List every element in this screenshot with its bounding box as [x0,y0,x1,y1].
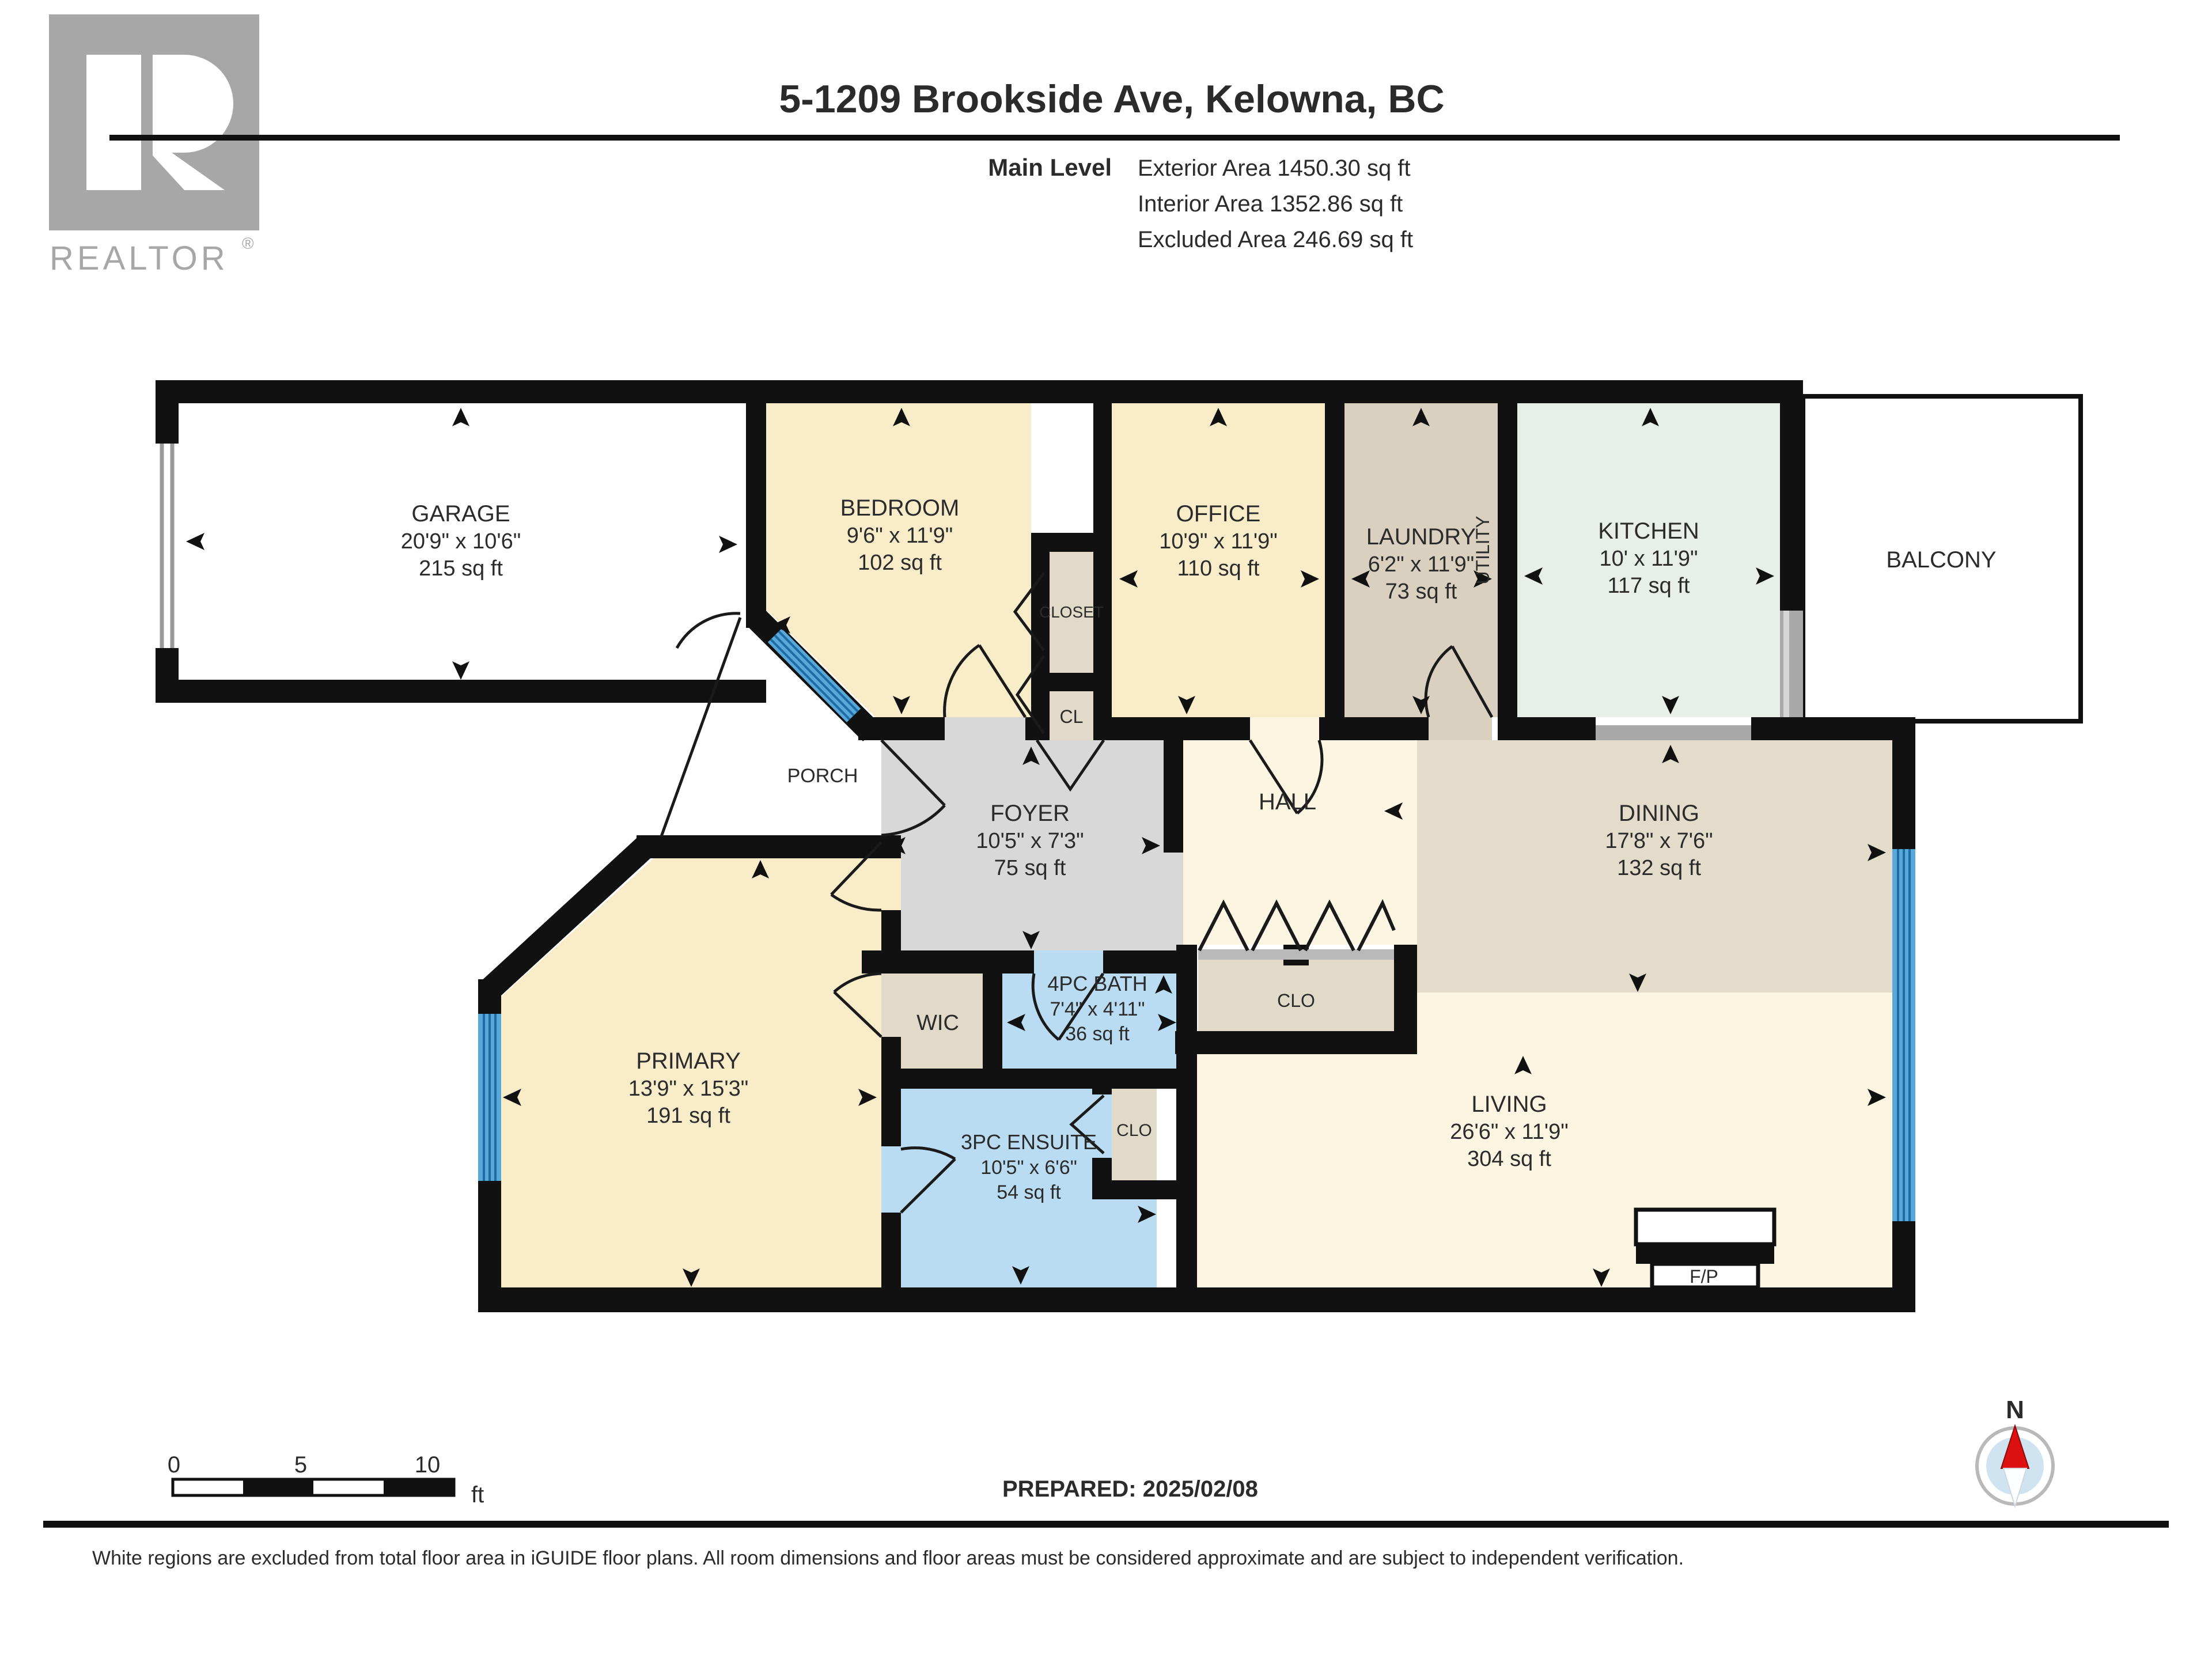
ensuite-dims: 10'5" x 6'6" [980,1157,1077,1179]
realtor-logo: REALTOR ® [49,14,259,277]
garage-area: 215 sq ft [419,556,503,581]
office-doorway [1250,717,1319,740]
bedroom-dims: 9'6" x 11'9" [847,524,953,548]
office-dims: 10'9" x 11'9" [1159,529,1278,554]
balcony-label: BALCONY [1886,547,1996,573]
prepared-date: PREPARED: 2025/02/08 [1002,1476,1258,1502]
bath-label: 4PC BATH [1047,972,1147,995]
scale-tick-5: 5 [294,1452,307,1478]
compass-north-label: N [2006,1396,2024,1424]
dining-dims: 17'8" x 7'6" [1605,829,1713,853]
living-area: 304 sq ft [1467,1147,1551,1171]
office-area: 110 sq ft [1177,556,1260,581]
disclaimer-text: White regions are excluded from total fl… [92,1547,1684,1569]
dining-label: DINING [1619,801,1699,826]
primary-area: 191 sq ft [646,1104,730,1128]
wic-label: WIC [916,1011,959,1035]
kitchen-slider-door [1596,717,1751,740]
bedroom-area: 102 sq ft [858,551,942,575]
foyer-dims: 10'5" x 7'3" [976,829,1084,853]
kitchen-dims: 10' x 11'9" [1600,547,1698,571]
laundry-dims: 6'2" x 11'9" [1368,552,1474,577]
living-dims: 26'6" x 11'9" [1450,1120,1569,1144]
garage-door [156,444,179,648]
closet-label: CLOSET [1039,603,1104,621]
utility-label: UTILITY [1472,516,1493,584]
bath-doorway [1034,950,1103,974]
dining-area: 132 sq ft [1617,856,1701,880]
realtor-logo-registered: ® [242,234,254,252]
bedroom-doorway [945,717,1025,740]
footer-divider [43,1521,2169,1528]
kitchen-label: KITCHEN [1598,518,1699,544]
ensuite-doorway [881,1146,901,1213]
bedroom-label: BEDROOM [840,495,960,521]
primary-label: PRIMARY [636,1048,741,1074]
scale-bar: 0 5 10 ft [168,1452,484,1508]
garage-label: GARAGE [411,501,510,527]
hall-closet-label: CLO [1277,990,1315,1011]
living-label: LIVING [1471,1092,1547,1117]
level-label: Main Level [988,154,1112,181]
scale-unit: ft [471,1482,484,1508]
kitchen-area: 117 sq ft [1608,574,1690,598]
foyer-area: 75 sq ft [994,856,1066,880]
bath-dims: 7'4" x 4'11" [1050,998,1145,1020]
scale-tick-10: 10 [415,1452,441,1478]
primary-window [478,1014,501,1181]
ensuite-area: 54 sq ft [997,1181,1061,1203]
interior-area: Interior Area 1352.86 sq ft [1138,191,1403,217]
bath-area: 36 sq ft [1065,1023,1130,1045]
cl-label: CL [1060,706,1084,727]
fireplace: F/P [1636,1210,1774,1287]
porch-label: PORCH [787,765,858,787]
floorplan-page: REALTOR ® 5-1209 Brookside Ave, Kelowna,… [0,0,2212,1659]
compass-icon: N [1977,1396,2053,1506]
scale-tick-0: 0 [168,1452,180,1478]
excluded-area: Excluded Area 246.69 sq ft [1138,227,1413,252]
exterior-area: Exterior Area 1450.30 sq ft [1138,156,1411,181]
foyer-label: FOYER [990,801,1070,826]
realtor-logo-text: REALTOR [50,240,229,277]
laundry-area: 73 sq ft [1385,579,1457,604]
laundry-doorway [1429,717,1492,740]
balcony-slider-door [1780,611,1803,717]
ensuite-label: 3PC ENSUITE [961,1130,1097,1154]
page-title: 5-1209 Brookside Ave, Kelowna, BC [779,77,1444,121]
wic-doorway [881,974,901,1037]
living-room-west [1197,1054,1410,1287]
living-window [1892,849,1915,1221]
realtor-logo-r-bar [86,55,141,190]
hall-closet-threshold [1198,949,1394,960]
ensuite-closet-label: CLO [1116,1121,1152,1140]
garage-dims: 20'9" x 10'6" [401,529,521,554]
office-label: OFFICE [1176,501,1261,527]
hall-label: HALL [1259,789,1316,815]
area-summary: Main Level Exterior Area 1450.30 sq ft I… [988,154,1413,252]
laundry-label: LAUNDRY [1366,524,1476,550]
fireplace-label: F/P [1690,1266,1718,1287]
primary-dims: 13'9" x 15'3" [628,1077,748,1101]
title-underline [109,135,2120,141]
